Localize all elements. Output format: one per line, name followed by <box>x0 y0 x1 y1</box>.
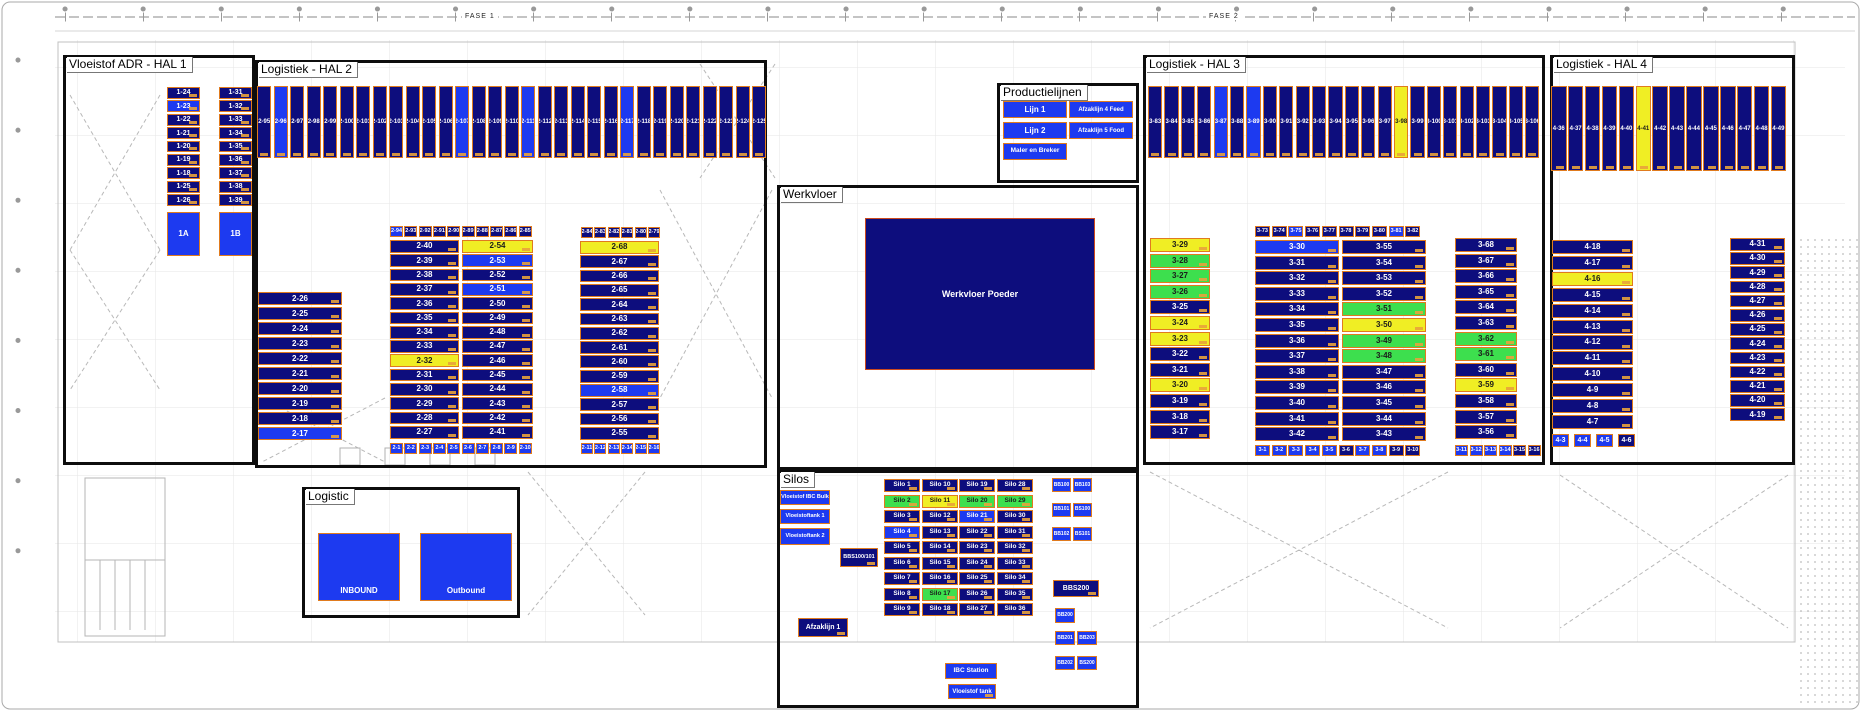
rack-4-28[interactable]: 4-28 <box>1730 281 1785 294</box>
rack-bb202[interactable]: BB202 <box>1055 656 1075 670</box>
rack-3-46[interactable]: 3-46 <box>1342 380 1426 394</box>
rack-2-49[interactable]: 2-49 <box>462 312 533 325</box>
rack-3-75[interactable]: 3-75 <box>1288 226 1303 237</box>
rack-2-111[interactable]: 2-111 <box>521 86 535 158</box>
rack-2-44[interactable]: 2-44 <box>462 383 533 396</box>
rack-bb103[interactable]: BB103 <box>1073 478 1092 492</box>
rack-maler-en-breker[interactable]: Maler en Breker <box>1003 143 1067 160</box>
rack-2-110[interactable]: 2-110 <box>505 86 519 158</box>
rack-2-105[interactable]: 2-105 <box>422 86 436 158</box>
rack-2-22[interactable]: 2-22 <box>258 352 342 365</box>
rack-bbs200[interactable]: BBS200 <box>1053 580 1099 597</box>
rack-2-4[interactable]: 2-4 <box>433 443 446 454</box>
rack-afzaklijn-4-feed[interactable]: Afzaklijn 4 Feed <box>1069 101 1133 118</box>
rack-2-95[interactable]: 2-95 <box>257 86 271 158</box>
rack-2-33[interactable]: 2-33 <box>390 340 459 353</box>
rack-3-92[interactable]: 3-92 <box>1296 86 1310 158</box>
rack-2-101[interactable]: 2-101 <box>356 86 370 158</box>
rack-3-32[interactable]: 3-32 <box>1255 271 1339 285</box>
rack-3-81[interactable]: 3-81 <box>1389 226 1404 237</box>
rack-2-14[interactable]: 2-14 <box>621 443 633 454</box>
rack-3-28[interactable]: 3-28 <box>1150 254 1210 268</box>
rack-3-11[interactable]: 3-11 <box>1455 445 1468 456</box>
rack-1b[interactable]: 1B <box>219 212 252 256</box>
rack-3-106[interactable]: 3-106 <box>1525 86 1539 158</box>
rack-3-20[interactable]: 3-20 <box>1150 378 1210 392</box>
rack-3-47[interactable]: 3-47 <box>1342 365 1426 379</box>
rack-2-31[interactable]: 2-31 <box>390 369 459 382</box>
rack-2-114[interactable]: 2-114 <box>571 86 585 158</box>
rack-1-39[interactable]: 1-39 <box>219 194 252 206</box>
rack-3-22[interactable]: 3-22 <box>1150 347 1210 361</box>
rack-4-22[interactable]: 4-22 <box>1730 366 1785 379</box>
rack-3-64[interactable]: 3-64 <box>1455 300 1517 314</box>
rack-4-29[interactable]: 4-29 <box>1730 266 1785 279</box>
rack-3-82[interactable]: 3-82 <box>1405 226 1420 237</box>
rack-4-36[interactable]: 4-36 <box>1551 86 1567 171</box>
rack-2-103[interactable]: 2-103 <box>389 86 403 158</box>
rack-3-80[interactable]: 3-80 <box>1372 226 1387 237</box>
rack-4-47[interactable]: 4-47 <box>1737 86 1753 171</box>
rack-2-125[interactable]: 2-125 <box>752 86 766 158</box>
rack-silo-32[interactable]: Silo 32 <box>997 541 1033 554</box>
rack-2-62[interactable]: 2-62 <box>580 327 659 340</box>
rack-bs100[interactable]: BS100 <box>1073 503 1092 517</box>
rack-silo-7[interactable]: Silo 7 <box>884 572 920 585</box>
rack-3-4[interactable]: 3-4 <box>1305 445 1320 456</box>
rack-silo-6[interactable]: Silo 6 <box>884 557 920 570</box>
rack-3-6[interactable]: 3-6 <box>1339 445 1354 456</box>
rack-3-27[interactable]: 3-27 <box>1150 269 1210 283</box>
rack-4-24[interactable]: 4-24 <box>1730 337 1785 350</box>
rack-4-21[interactable]: 4-21 <box>1730 380 1785 393</box>
rack-2-42[interactable]: 2-42 <box>462 412 533 425</box>
rack-2-63[interactable]: 2-63 <box>580 313 659 326</box>
rack-2-34[interactable]: 2-34 <box>390 326 459 339</box>
rack-silo-9[interactable]: Silo 9 <box>884 603 920 616</box>
rack-2-107[interactable]: 2-107 <box>455 86 469 158</box>
rack-silo-14[interactable]: Silo 14 <box>922 541 958 554</box>
rack-4-45[interactable]: 4-45 <box>1703 86 1719 171</box>
rack-2-80[interactable]: 2-80 <box>635 227 647 238</box>
rack-2-97[interactable]: 2-97 <box>290 86 304 158</box>
rack-bb101[interactable]: BB101 <box>1052 503 1071 517</box>
rack-3-25[interactable]: 3-25 <box>1150 300 1210 314</box>
rack-bb102[interactable]: BB102 <box>1052 527 1071 541</box>
rack-2-46[interactable]: 2-46 <box>462 354 533 367</box>
rack-silo-2[interactable]: Silo 2 <box>884 495 920 508</box>
rack-vloeistof-ibc-bulk[interactable]: Vloeistof IBC Bulk <box>780 490 830 505</box>
rack-3-3[interactable]: 3-3 <box>1288 445 1303 456</box>
rack-4-11[interactable]: 4-11 <box>1552 351 1633 365</box>
rack-2-57[interactable]: 2-57 <box>580 398 659 411</box>
rack-2-121[interactable]: 2-121 <box>686 86 700 158</box>
rack-3-79[interactable]: 3-79 <box>1355 226 1370 237</box>
rack-3-5[interactable]: 3-5 <box>1322 445 1337 456</box>
rack-3-18[interactable]: 3-18 <box>1150 410 1210 424</box>
rack-2-85[interactable]: 2-85 <box>519 226 532 237</box>
rack-silo-22[interactable]: Silo 22 <box>959 526 995 539</box>
rack-3-62[interactable]: 3-62 <box>1455 332 1517 346</box>
rack-silo-30[interactable]: Silo 30 <box>997 510 1033 523</box>
rack-2-59[interactable]: 2-59 <box>580 370 659 383</box>
rack-2-106[interactable]: 2-106 <box>439 86 453 158</box>
rack-silo-25[interactable]: Silo 25 <box>959 572 995 585</box>
rack-bs101[interactable]: BS101 <box>1073 527 1092 541</box>
rack-3-16[interactable]: 3-16 <box>1528 445 1541 456</box>
rack-3-93[interactable]: 3-93 <box>1312 86 1326 158</box>
rack-2-67[interactable]: 2-67 <box>580 255 659 268</box>
rack-2-56[interactable]: 2-56 <box>580 413 659 426</box>
rack-3-36[interactable]: 3-36 <box>1255 334 1339 348</box>
rack-silo-12[interactable]: Silo 12 <box>922 510 958 523</box>
rack-4-17[interactable]: 4-17 <box>1552 256 1633 270</box>
rack-3-87[interactable]: 3-87 <box>1214 86 1228 158</box>
rack-vloeistoftank-1[interactable]: Vloeistoftank 1 <box>780 509 830 524</box>
rack-lijn-2[interactable]: Lijn 2 <box>1003 122 1067 139</box>
rack-2-86[interactable]: 2-86 <box>504 226 517 237</box>
rack-3-98[interactable]: 3-98 <box>1394 86 1408 158</box>
rack-3-65[interactable]: 3-65 <box>1455 285 1517 299</box>
rack-4-44[interactable]: 4-44 <box>1686 86 1702 171</box>
rack-4-13[interactable]: 4-13 <box>1552 320 1633 334</box>
rack-ibc-station[interactable]: IBC Station <box>945 663 997 679</box>
rack-1-23[interactable]: 1-23 <box>167 100 200 112</box>
rack-2-13[interactable]: 2-13 <box>608 443 620 454</box>
rack-3-100[interactable]: 3-100 <box>1427 86 1441 158</box>
rack-3-10[interactable]: 3-10 <box>1405 445 1420 456</box>
rack-3-39[interactable]: 3-39 <box>1255 380 1339 394</box>
rack-2-30[interactable]: 2-30 <box>390 383 459 396</box>
rack-4-16[interactable]: 4-16 <box>1552 272 1633 286</box>
rack-silo-24[interactable]: Silo 24 <box>959 557 995 570</box>
rack-2-83[interactable]: 2-83 <box>594 227 606 238</box>
rack-3-97[interactable]: 3-97 <box>1378 86 1392 158</box>
rack-1-32[interactable]: 1-32 <box>219 100 252 112</box>
rack-silo-29[interactable]: Silo 29 <box>997 495 1033 508</box>
rack-3-99[interactable]: 3-99 <box>1410 86 1424 158</box>
rack-2-23[interactable]: 2-23 <box>258 337 342 350</box>
rack-bb201[interactable]: BB201 <box>1055 631 1075 645</box>
rack-3-76[interactable]: 3-76 <box>1305 226 1320 237</box>
rack-4-39[interactable]: 4-39 <box>1602 86 1618 171</box>
rack-3-52[interactable]: 3-52 <box>1342 287 1426 301</box>
rack-4-31[interactable]: 4-31 <box>1730 238 1785 251</box>
rack-3-68[interactable]: 3-68 <box>1455 238 1517 252</box>
rack-bb203[interactable]: BB203 <box>1077 631 1097 645</box>
rack-silo-36[interactable]: Silo 36 <box>997 603 1033 616</box>
rack-2-94[interactable]: 2-94 <box>390 226 403 237</box>
rack-2-48[interactable]: 2-48 <box>462 326 533 339</box>
rack-2-19[interactable]: 2-19 <box>258 397 342 410</box>
rack-2-92[interactable]: 2-92 <box>419 226 432 237</box>
rack-2-113[interactable]: 2-113 <box>554 86 568 158</box>
rack-2-117[interactable]: 2-117 <box>620 86 634 158</box>
rack-1-38[interactable]: 1-38 <box>219 181 252 193</box>
rack-2-84[interactable]: 2-84 <box>581 227 593 238</box>
rack-2-29[interactable]: 2-29 <box>390 397 459 410</box>
rack-3-101[interactable]: 3-101 <box>1443 86 1457 158</box>
rack-silo-27[interactable]: Silo 27 <box>959 603 995 616</box>
rack-3-74[interactable]: 3-74 <box>1272 226 1287 237</box>
rack-4-10[interactable]: 4-10 <box>1552 367 1633 381</box>
rack-4-25[interactable]: 4-25 <box>1730 323 1785 336</box>
rack-bb200[interactable]: BB200 <box>1055 608 1075 623</box>
rack-2-28[interactable]: 2-28 <box>390 412 459 425</box>
rack-2-66[interactable]: 2-66 <box>580 270 659 283</box>
rack-3-33[interactable]: 3-33 <box>1255 287 1339 301</box>
rack-2-39[interactable]: 2-39 <box>390 254 459 267</box>
rack-2-82[interactable]: 2-82 <box>608 227 620 238</box>
rack-2-123[interactable]: 2-123 <box>719 86 733 158</box>
rack-3-50[interactable]: 3-50 <box>1342 318 1426 332</box>
rack-silo-20[interactable]: Silo 20 <box>959 495 995 508</box>
rack-4-4[interactable]: 4-4 <box>1574 434 1591 447</box>
rack-3-13[interactable]: 3-13 <box>1484 445 1497 456</box>
rack-3-14[interactable]: 3-14 <box>1499 445 1512 456</box>
rack-1-33[interactable]: 1-33 <box>219 114 252 126</box>
rack-3-19[interactable]: 3-19 <box>1150 394 1210 408</box>
rack-3-73[interactable]: 3-73 <box>1255 226 1270 237</box>
rack-2-100[interactable]: 2-100 <box>340 86 354 158</box>
rack-silo-19[interactable]: Silo 19 <box>959 479 995 492</box>
rack-3-94[interactable]: 3-94 <box>1328 86 1342 158</box>
rack-2-10[interactable]: 2-10 <box>519 443 532 454</box>
rack-1-24[interactable]: 1-24 <box>167 87 200 99</box>
rack-4-37[interactable]: 4-37 <box>1568 86 1584 171</box>
rack-2-102[interactable]: 2-102 <box>373 86 387 158</box>
rack-2-65[interactable]: 2-65 <box>580 284 659 297</box>
rack-4-27[interactable]: 4-27 <box>1730 295 1785 308</box>
rack-3-9[interactable]: 3-9 <box>1389 445 1404 456</box>
rack-2-16[interactable]: 2-16 <box>648 443 660 454</box>
rack-3-103[interactable]: 3-103 <box>1476 86 1490 158</box>
rack-2-64[interactable]: 2-64 <box>580 298 659 311</box>
rack-1-18[interactable]: 1-18 <box>167 167 200 179</box>
rack-4-42[interactable]: 4-42 <box>1652 86 1668 171</box>
rack-3-85[interactable]: 3-85 <box>1181 86 1195 158</box>
rack-2-119[interactable]: 2-119 <box>653 86 667 158</box>
rack-4-26[interactable]: 4-26 <box>1730 309 1785 322</box>
rack-4-46[interactable]: 4-46 <box>1720 86 1736 171</box>
rack-3-23[interactable]: 3-23 <box>1150 332 1210 346</box>
rack-4-38[interactable]: 4-38 <box>1585 86 1601 171</box>
rack-2-12[interactable]: 2-12 <box>594 443 606 454</box>
rack-2-9[interactable]: 2-9 <box>504 443 517 454</box>
rack-2-5[interactable]: 2-5 <box>447 443 460 454</box>
rack-2-91[interactable]: 2-91 <box>433 226 446 237</box>
rack-2-21[interactable]: 2-21 <box>258 367 342 380</box>
rack-silo-18[interactable]: Silo 18 <box>922 603 958 616</box>
rack-2-60[interactable]: 2-60 <box>580 355 659 368</box>
rack-inbound[interactable]: INBOUND <box>318 533 400 601</box>
rack-silo-8[interactable]: Silo 8 <box>884 588 920 601</box>
rack-2-99[interactable]: 2-99 <box>323 86 337 158</box>
rack-1-19[interactable]: 1-19 <box>167 154 200 166</box>
rack-3-24[interactable]: 3-24 <box>1150 316 1210 330</box>
rack-4-15[interactable]: 4-15 <box>1552 288 1633 302</box>
rack-2-47[interactable]: 2-47 <box>462 340 533 353</box>
rack-outbound[interactable]: Outbound <box>420 533 512 601</box>
rack-2-55[interactable]: 2-55 <box>580 427 659 440</box>
rack-1a[interactable]: 1A <box>167 212 200 256</box>
rack-2-50[interactable]: 2-50 <box>462 297 533 310</box>
rack-1-36[interactable]: 1-36 <box>219 154 252 166</box>
rack-2-32[interactable]: 2-32 <box>390 354 459 367</box>
rack-3-34[interactable]: 3-34 <box>1255 302 1339 316</box>
rack-3-38[interactable]: 3-38 <box>1255 365 1339 379</box>
rack-3-90[interactable]: 3-90 <box>1263 86 1277 158</box>
rack-2-2[interactable]: 2-2 <box>404 443 417 454</box>
rack-1-31[interactable]: 1-31 <box>219 87 252 99</box>
rack-4-18[interactable]: 4-18 <box>1552 240 1633 254</box>
rack-4-6[interactable]: 4-6 <box>1618 434 1635 447</box>
rack-2-18[interactable]: 2-18 <box>258 412 342 425</box>
rack-2-26[interactable]: 2-26 <box>258 292 342 305</box>
rack-3-66[interactable]: 3-66 <box>1455 269 1517 283</box>
rack-2-118[interactable]: 2-118 <box>637 86 651 158</box>
rack-3-12[interactable]: 3-12 <box>1470 445 1483 456</box>
rack-3-30[interactable]: 3-30 <box>1255 240 1339 254</box>
rack-3-51[interactable]: 3-51 <box>1342 302 1426 316</box>
rack-silo-15[interactable]: Silo 15 <box>922 557 958 570</box>
rack-4-5[interactable]: 4-5 <box>1596 434 1613 447</box>
rack-2-11[interactable]: 2-11 <box>581 443 593 454</box>
rack-1-21[interactable]: 1-21 <box>167 127 200 139</box>
rack-2-116[interactable]: 2-116 <box>604 86 618 158</box>
rack-bs200[interactable]: BS200 <box>1077 656 1097 670</box>
rack-3-37[interactable]: 3-37 <box>1255 349 1339 363</box>
rack-3-7[interactable]: 3-7 <box>1355 445 1370 456</box>
rack-2-8[interactable]: 2-8 <box>490 443 503 454</box>
rack-4-30[interactable]: 4-30 <box>1730 252 1785 265</box>
rack-2-104[interactable]: 2-104 <box>406 86 420 158</box>
rack-2-88[interactable]: 2-88 <box>476 226 489 237</box>
rack-2-1[interactable]: 2-1 <box>390 443 403 454</box>
rack-4-12[interactable]: 4-12 <box>1552 335 1633 349</box>
rack-2-43[interactable]: 2-43 <box>462 397 533 410</box>
rack-3-89[interactable]: 3-89 <box>1246 86 1260 158</box>
rack-3-91[interactable]: 3-91 <box>1279 86 1293 158</box>
rack-2-54[interactable]: 2-54 <box>462 240 533 253</box>
rack-2-27[interactable]: 2-27 <box>390 426 459 439</box>
rack-3-45[interactable]: 3-45 <box>1342 396 1426 410</box>
rack-4-8[interactable]: 4-8 <box>1552 399 1633 413</box>
rack-2-124[interactable]: 2-124 <box>736 86 750 158</box>
rack-3-43[interactable]: 3-43 <box>1342 427 1426 441</box>
rack-3-105[interactable]: 3-105 <box>1509 86 1523 158</box>
rack-2-81[interactable]: 2-81 <box>621 227 633 238</box>
rack-3-56[interactable]: 3-56 <box>1455 425 1517 439</box>
rack-3-42[interactable]: 3-42 <box>1255 427 1339 441</box>
rack-silo-5[interactable]: Silo 5 <box>884 541 920 554</box>
rack-vloeistof-tank[interactable]: Vloeistof tank <box>948 684 996 699</box>
rack-silo-26[interactable]: Silo 26 <box>959 588 995 601</box>
rack-3-2[interactable]: 3-2 <box>1272 445 1287 456</box>
rack-3-40[interactable]: 3-40 <box>1255 396 1339 410</box>
rack-4-49[interactable]: 4-49 <box>1771 86 1787 171</box>
rack-2-68[interactable]: 2-68 <box>580 241 659 254</box>
rack-3-59[interactable]: 3-59 <box>1455 378 1517 392</box>
rack-2-51[interactable]: 2-51 <box>462 283 533 296</box>
rack-2-15[interactable]: 2-15 <box>635 443 647 454</box>
rack-silo-35[interactable]: Silo 35 <box>997 588 1033 601</box>
rack-4-41[interactable]: 4-41 <box>1636 86 1652 171</box>
rack-silo-11[interactable]: Silo 11 <box>922 495 958 508</box>
rack-3-35[interactable]: 3-35 <box>1255 318 1339 332</box>
rack-3-77[interactable]: 3-77 <box>1322 226 1337 237</box>
rack-silo-31[interactable]: Silo 31 <box>997 526 1033 539</box>
rack-2-109[interactable]: 2-109 <box>488 86 502 158</box>
rack-3-63[interactable]: 3-63 <box>1455 316 1517 330</box>
rack-2-35[interactable]: 2-35 <box>390 312 459 325</box>
rack-3-1[interactable]: 3-1 <box>1255 445 1270 456</box>
rack-2-38[interactable]: 2-38 <box>390 269 459 282</box>
rack-1-20[interactable]: 1-20 <box>167 141 200 153</box>
rack-2-96[interactable]: 2-96 <box>274 86 288 158</box>
rack-3-57[interactable]: 3-57 <box>1455 410 1517 424</box>
rack-2-6[interactable]: 2-6 <box>462 443 475 454</box>
rack-2-37[interactable]: 2-37 <box>390 283 459 296</box>
rack-2-90[interactable]: 2-90 <box>447 226 460 237</box>
rack-silo-10[interactable]: Silo 10 <box>922 479 958 492</box>
rack-2-61[interactable]: 2-61 <box>580 341 659 354</box>
rack-silo-1[interactable]: Silo 1 <box>884 479 920 492</box>
rack-1-34[interactable]: 1-34 <box>219 127 252 139</box>
rack-3-84[interactable]: 3-84 <box>1164 86 1178 158</box>
rack-2-40[interactable]: 2-40 <box>390 240 459 253</box>
rack-silo-23[interactable]: Silo 23 <box>959 541 995 554</box>
rack-4-40[interactable]: 4-40 <box>1619 86 1635 171</box>
rack-3-86[interactable]: 3-86 <box>1197 86 1211 158</box>
rack-2-45[interactable]: 2-45 <box>462 369 533 382</box>
rack-3-49[interactable]: 3-49 <box>1342 334 1426 348</box>
rack-3-54[interactable]: 3-54 <box>1342 256 1426 270</box>
rack-silo-28[interactable]: Silo 28 <box>997 479 1033 492</box>
rack-2-98[interactable]: 2-98 <box>307 86 321 158</box>
rack-4-7[interactable]: 4-7 <box>1552 415 1633 429</box>
rack-2-36[interactable]: 2-36 <box>390 297 459 310</box>
rack-2-20[interactable]: 2-20 <box>258 382 342 395</box>
rack-4-48[interactable]: 4-48 <box>1754 86 1770 171</box>
rack-3-26[interactable]: 3-26 <box>1150 285 1210 299</box>
rack-3-83[interactable]: 3-83 <box>1148 86 1162 158</box>
rack-3-41[interactable]: 3-41 <box>1255 412 1339 426</box>
rack-3-61[interactable]: 3-61 <box>1455 347 1517 361</box>
rack-2-52[interactable]: 2-52 <box>462 269 533 282</box>
rack-3-15[interactable]: 3-15 <box>1513 445 1526 456</box>
rack-2-120[interactable]: 2-120 <box>670 86 684 158</box>
rack-3-88[interactable]: 3-88 <box>1230 86 1244 158</box>
rack-silo-3[interactable]: Silo 3 <box>884 510 920 523</box>
rack-3-95[interactable]: 3-95 <box>1345 86 1359 158</box>
rack-afzaklijn-1[interactable]: Afzaklijn 1 <box>798 618 848 637</box>
rack-4-9[interactable]: 4-9 <box>1552 383 1633 397</box>
rack-silo-34[interactable]: Silo 34 <box>997 572 1033 585</box>
rack-silo-21[interactable]: Silo 21 <box>959 510 995 523</box>
rack-vloeistoftank-2[interactable]: Vloeistoftank 2 <box>780 528 830 545</box>
rack-2-112[interactable]: 2-112 <box>538 86 552 158</box>
rack-3-96[interactable]: 3-96 <box>1361 86 1375 158</box>
rack-4-43[interactable]: 4-43 <box>1669 86 1685 171</box>
rack-3-102[interactable]: 3-102 <box>1460 86 1474 158</box>
rack-3-21[interactable]: 3-21 <box>1150 363 1210 377</box>
rack-3-8[interactable]: 3-8 <box>1372 445 1387 456</box>
rack-2-25[interactable]: 2-25 <box>258 307 342 320</box>
rack-3-53[interactable]: 3-53 <box>1342 271 1426 285</box>
rack-2-3[interactable]: 2-3 <box>419 443 432 454</box>
rack-3-58[interactable]: 3-58 <box>1455 394 1517 408</box>
